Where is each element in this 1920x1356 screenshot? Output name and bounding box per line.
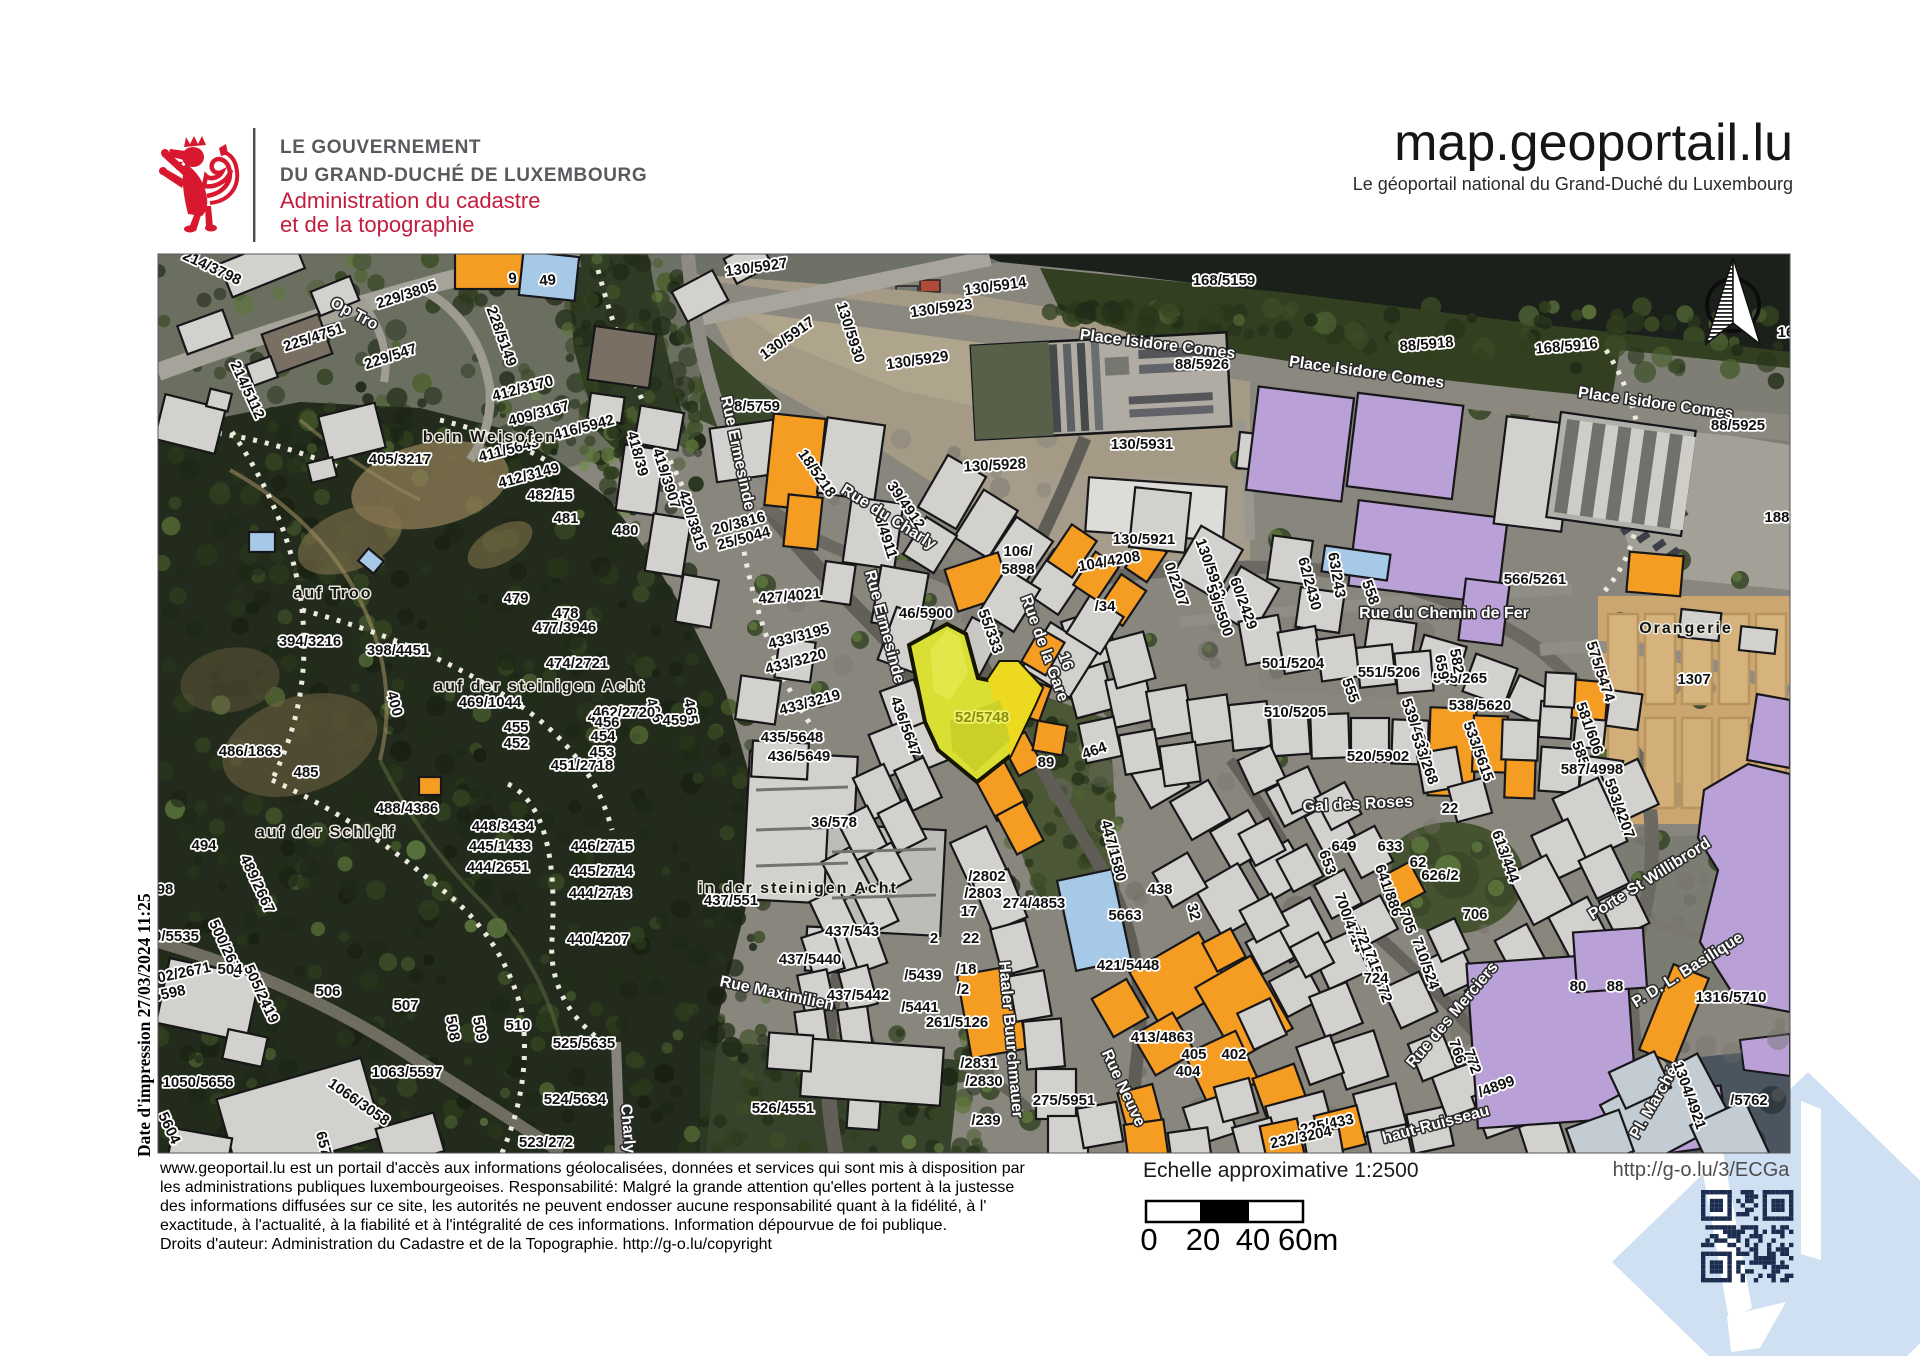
svg-text:587/4998: 587/4998 bbox=[1561, 761, 1624, 778]
svg-text:506: 506 bbox=[315, 983, 340, 1000]
svg-text:et de la topographie: et de la topographie bbox=[280, 212, 475, 237]
svg-text:130/5931: 130/5931 bbox=[1111, 436, 1174, 453]
svg-text:DU GRAND-DUCHÉ DE LUXEMBOURG: DU GRAND-DUCHÉ DE LUXEMBOURG bbox=[280, 164, 647, 186]
svg-text:130/5921: 130/5921 bbox=[1113, 531, 1176, 548]
svg-text:1316/5710: 1316/5710 bbox=[1696, 989, 1767, 1006]
svg-text:480: 480 bbox=[613, 522, 638, 539]
svg-text:275/5951: 275/5951 bbox=[1033, 1092, 1096, 1109]
svg-text:auf Troo: auf Troo bbox=[293, 585, 372, 602]
svg-text:649: 649 bbox=[1331, 838, 1356, 855]
svg-text:/2830: /2830 bbox=[965, 1073, 1003, 1090]
svg-text:98: 98 bbox=[157, 881, 174, 898]
svg-text:444/2713: 444/2713 bbox=[569, 885, 632, 902]
svg-text:/239: /239 bbox=[971, 1112, 1000, 1129]
svg-text:40: 40 bbox=[1236, 1222, 1270, 1257]
svg-text:Rue du Chemin de Fer: Rue du Chemin de Fer bbox=[1359, 605, 1529, 622]
svg-text:523/272: 523/272 bbox=[519, 1134, 573, 1151]
svg-text:524/5634: 524/5634 bbox=[544, 1091, 607, 1108]
svg-text:1050/5656: 1050/5656 bbox=[163, 1074, 234, 1091]
svg-text:626/2: 626/2 bbox=[1421, 867, 1459, 884]
svg-text:510: 510 bbox=[505, 1017, 530, 1034]
svg-text:479: 479 bbox=[503, 590, 528, 607]
svg-text:437/5442: 437/5442 bbox=[827, 987, 890, 1004]
svg-text:2: 2 bbox=[930, 930, 938, 947]
svg-text:274/4853: 274/4853 bbox=[1003, 895, 1066, 912]
svg-text:394/3216: 394/3216 bbox=[279, 633, 342, 650]
svg-text:49: 49 bbox=[539, 271, 557, 289]
svg-text:451/2718: 451/2718 bbox=[551, 757, 614, 774]
svg-text:/2831: /2831 bbox=[960, 1055, 998, 1072]
svg-text:0: 0 bbox=[1140, 1222, 1157, 1257]
svg-text:Orangerie: Orangerie bbox=[1639, 620, 1733, 637]
svg-text:map.geoportail.lu: map.geoportail.lu bbox=[1394, 114, 1793, 172]
svg-text:551/5206: 551/5206 bbox=[1358, 664, 1421, 681]
svg-text:444/2651: 444/2651 bbox=[467, 859, 530, 876]
svg-text:/2802: /2802 bbox=[968, 868, 1006, 885]
svg-text:437/543: 437/543 bbox=[825, 923, 879, 940]
svg-text:706: 706 bbox=[1462, 906, 1487, 923]
svg-text:455: 455 bbox=[503, 719, 528, 736]
svg-text:520/5902: 520/5902 bbox=[1347, 748, 1410, 765]
svg-text:526/4551: 526/4551 bbox=[752, 1100, 815, 1117]
svg-text:22: 22 bbox=[1442, 800, 1459, 817]
svg-text:5898: 5898 bbox=[1001, 561, 1034, 578]
svg-text:auf der steinigen Acht: auf der steinigen Acht bbox=[434, 678, 645, 695]
svg-text:60m: 60m bbox=[1278, 1222, 1338, 1257]
svg-text:in der steinigen Acht: in der steinigen Acht bbox=[698, 880, 898, 897]
svg-text:Droits d'auteur: Administratio: Droits d'auteur: Administration du Cadas… bbox=[160, 1236, 773, 1253]
svg-text:405/3217: 405/3217 bbox=[369, 451, 432, 468]
svg-text:106/: 106/ bbox=[1003, 543, 1033, 560]
svg-text:52/5748: 52/5748 bbox=[955, 709, 1009, 726]
svg-text:www.geoportail.lu est un porta: www.geoportail.lu est un portail d'accès… bbox=[159, 1160, 1026, 1177]
svg-text:46/5900: 46/5900 bbox=[899, 605, 953, 622]
svg-text:/5762: /5762 bbox=[1730, 1092, 1768, 1109]
svg-text:402: 402 bbox=[1221, 1046, 1246, 1063]
svg-text:404: 404 bbox=[1175, 1063, 1201, 1080]
svg-text:1307: 1307 bbox=[1677, 671, 1710, 688]
svg-text:88: 88 bbox=[1607, 978, 1624, 995]
svg-text:435/5648: 435/5648 bbox=[761, 729, 824, 746]
svg-text:LE GOUVERNEMENT: LE GOUVERNEMENT bbox=[280, 137, 481, 158]
svg-text:bein Weisofen: bein Weisofen bbox=[423, 429, 557, 446]
svg-text:485: 485 bbox=[293, 764, 318, 781]
svg-text:0/5535: 0/5535 bbox=[153, 928, 199, 945]
svg-text:440/4207: 440/4207 bbox=[567, 931, 630, 948]
svg-text:459: 459 bbox=[662, 712, 687, 729]
svg-text:501/5204: 501/5204 bbox=[1262, 655, 1325, 672]
svg-text:469/1044: 469/1044 bbox=[459, 694, 522, 711]
svg-text:exactitude, à l'actualité, à l: exactitude, à l'actualité, à la fiabilit… bbox=[160, 1217, 947, 1234]
svg-text:/34: /34 bbox=[1095, 598, 1117, 615]
svg-text:http://g-o.lu/3/ECGa: http://g-o.lu/3/ECGa bbox=[1613, 1159, 1791, 1181]
svg-text:auf der Schleif: auf der Schleif bbox=[256, 824, 396, 841]
svg-text:437/5440: 437/5440 bbox=[779, 951, 842, 968]
svg-text:436/5649: 436/5649 bbox=[768, 748, 831, 765]
svg-text:477/3946: 477/3946 bbox=[534, 619, 597, 636]
svg-text:421/5448: 421/5448 bbox=[1097, 957, 1160, 974]
svg-text:507: 507 bbox=[393, 997, 418, 1014]
svg-text:474/2721: 474/2721 bbox=[546, 655, 609, 672]
svg-text:9: 9 bbox=[508, 270, 518, 288]
svg-text:les administrations publiques: les administrations publiques luxembourg… bbox=[160, 1179, 1014, 1196]
svg-text:Date d'impression 27/03/2024 1: Date d'impression 27/03/2024 11:25 bbox=[134, 893, 154, 1157]
svg-text:Le géoportail national du Gran: Le géoportail national du Grand-Duché du… bbox=[1353, 174, 1793, 194]
svg-text:Administration du cadastre: Administration du cadastre bbox=[280, 188, 540, 213]
svg-text:130/5928: 130/5928 bbox=[963, 455, 1026, 475]
svg-text:5663: 5663 bbox=[1108, 907, 1141, 924]
svg-text:16: 16 bbox=[1778, 324, 1795, 341]
svg-text:525/5635: 525/5635 bbox=[553, 1035, 616, 1052]
svg-text:538/5620: 538/5620 bbox=[1449, 697, 1512, 714]
svg-text:445/1433: 445/1433 bbox=[469, 838, 532, 855]
svg-text:566/5261: 566/5261 bbox=[1504, 571, 1567, 588]
svg-text:504: 504 bbox=[217, 961, 243, 978]
svg-text:494: 494 bbox=[191, 837, 217, 854]
svg-text:454: 454 bbox=[590, 728, 616, 745]
svg-text:Echelle approximative 1:2500: Echelle approximative 1:2500 bbox=[1143, 1159, 1419, 1182]
svg-text:405: 405 bbox=[1181, 1046, 1206, 1063]
svg-text:168/5159: 168/5159 bbox=[1193, 272, 1256, 289]
svg-text:445/2714: 445/2714 bbox=[571, 863, 634, 880]
svg-text:413/4863: 413/4863 bbox=[1131, 1029, 1194, 1046]
svg-text:724: 724 bbox=[1363, 970, 1389, 987]
svg-text:88/5925: 88/5925 bbox=[1711, 417, 1765, 434]
svg-text:486/1863: 486/1863 bbox=[219, 743, 282, 760]
svg-text:398/4451: 398/4451 bbox=[367, 642, 430, 659]
svg-text:448/3434: 448/3434 bbox=[472, 818, 535, 835]
svg-text:446/2715: 446/2715 bbox=[571, 838, 634, 855]
svg-text:438: 438 bbox=[1147, 881, 1172, 898]
svg-text:261/5126: 261/5126 bbox=[926, 1014, 989, 1031]
svg-text:80: 80 bbox=[1570, 978, 1587, 995]
svg-text:482/15: 482/15 bbox=[527, 487, 573, 504]
svg-text:36/578: 36/578 bbox=[811, 814, 857, 831]
svg-text:/2803: /2803 bbox=[964, 885, 1002, 902]
svg-text:/5439: /5439 bbox=[904, 967, 942, 984]
svg-text:des informations diffusées sur: des informations diffusées sur ce site, … bbox=[160, 1198, 986, 1215]
svg-text:89: 89 bbox=[1038, 754, 1055, 771]
svg-text:20: 20 bbox=[1186, 1222, 1220, 1257]
svg-text:/18: /18 bbox=[956, 961, 977, 978]
svg-text:510/5205: 510/5205 bbox=[1264, 704, 1327, 721]
svg-text:452: 452 bbox=[503, 735, 528, 752]
svg-text:88/5926: 88/5926 bbox=[1175, 356, 1229, 373]
svg-text:1063/5597: 1063/5597 bbox=[372, 1064, 443, 1081]
svg-text:22: 22 bbox=[963, 930, 980, 947]
svg-text:488/4386: 488/4386 bbox=[376, 800, 439, 817]
svg-text:481: 481 bbox=[553, 510, 578, 527]
svg-text:17: 17 bbox=[961, 903, 978, 920]
svg-text:8/5759: 8/5759 bbox=[734, 398, 780, 415]
svg-text:633: 633 bbox=[1377, 838, 1402, 855]
svg-text:/2: /2 bbox=[957, 981, 970, 998]
